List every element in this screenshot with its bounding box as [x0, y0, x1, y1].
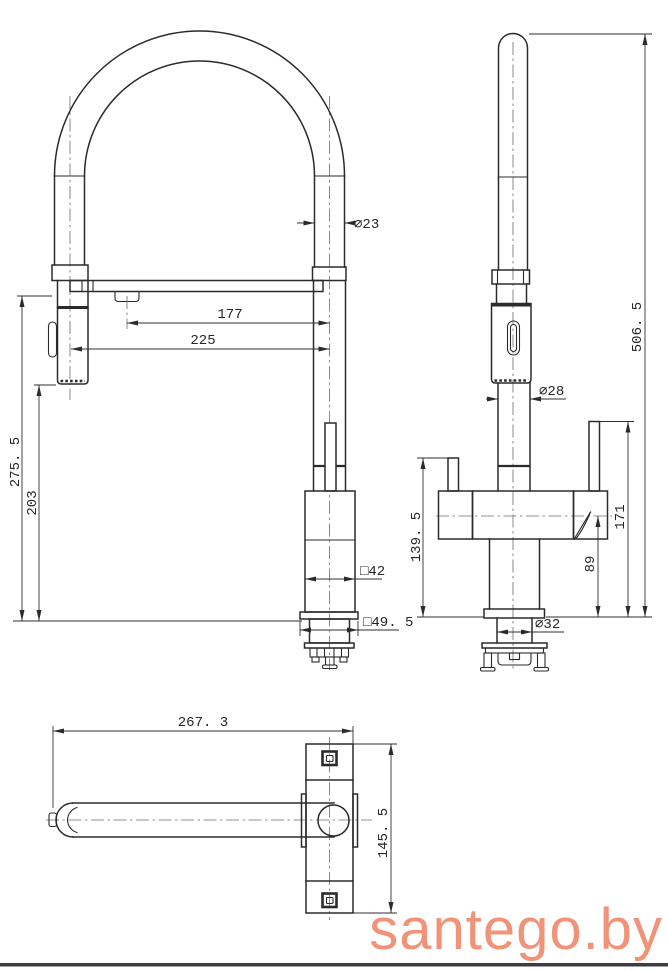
- spout-arm: [52, 265, 346, 302]
- riser-side: [492, 34, 530, 304]
- faucet-technical-drawing: ⌀23 177 225 275. 5 203 □42 □49. 5: [0, 0, 668, 970]
- spray-head-side: [492, 304, 532, 384]
- bottom-view: 267. 3 145. 5: [46, 715, 397, 920]
- dim-body-square: □42: [360, 564, 385, 580]
- dim-riser-diameter: ⌀28: [539, 384, 564, 400]
- spray-head: [49, 281, 89, 385]
- faucet-body-front: [300, 281, 358, 649]
- spray-button: [49, 322, 57, 357]
- dim-base-diameter: ⌀32: [535, 617, 560, 633]
- footer-bar: [0, 963, 668, 967]
- dim-overall-length: 267. 3: [178, 715, 228, 731]
- dim-left-handle-height: 139. 5: [409, 512, 425, 562]
- left-handle-body: [439, 491, 473, 539]
- dim-spout-axis-height: 89: [583, 556, 599, 573]
- spring-hose-arc: [55, 31, 345, 267]
- handle-stem-front: [325, 423, 336, 491]
- dim-height-to-arm: 275. 5: [8, 437, 24, 487]
- left-handle-stem: [448, 458, 459, 491]
- dim-base-square: □49. 5: [363, 615, 413, 631]
- dim-reach-inner: 177: [217, 307, 242, 323]
- mounting-hardware-side: [481, 648, 549, 671]
- dim-hose-diameter: ⌀23: [354, 217, 379, 233]
- faucet-body-side: [439, 383, 608, 648]
- dim-overall-depth: 145. 5: [376, 808, 392, 858]
- dim-height-to-spray: 203: [25, 490, 41, 515]
- front-view: ⌀23 177 225 275. 5 203 □42 □49. 5: [8, 31, 413, 670]
- spray-button-side: [508, 321, 520, 355]
- mounting-hardware-front: [310, 648, 349, 669]
- watermark-text: santego.by: [369, 897, 663, 962]
- dim-reach-total: 225: [190, 333, 215, 349]
- side-view: 506. 5 ⌀28 139. 5 89 171 ⌀32: [409, 34, 652, 673]
- technical-drawing-page: ⌀23 177 225 275. 5 203 □42 □49. 5: [0, 0, 668, 970]
- dim-overall-height: 506. 5: [630, 302, 646, 352]
- dim-handle-top-height: 171: [613, 504, 629, 529]
- right-handle-stem: [589, 422, 600, 492]
